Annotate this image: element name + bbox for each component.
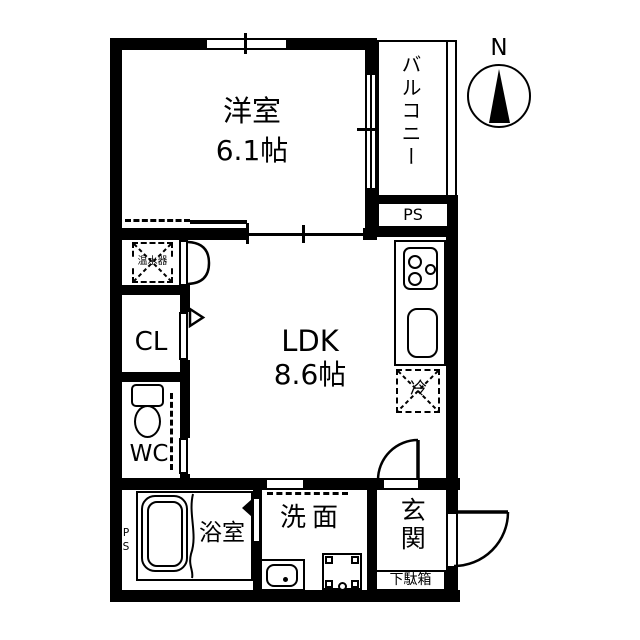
wall-left (110, 38, 122, 602)
window-balcony-tick (357, 128, 377, 131)
water-heater-door-leaf (179, 240, 188, 286)
heater-door-arc-top (188, 242, 209, 263)
closet-door-marker (190, 309, 203, 326)
western-room-size: 6.1帖 (185, 136, 319, 165)
sliding-door-track (247, 233, 363, 236)
room-boundary-dashed (125, 219, 190, 222)
pipe-space-bath-label: PS (120, 527, 131, 555)
wall-column-right-2 (180, 295, 190, 312)
shoe-cabinet-label: 下駄箱 (375, 573, 446, 588)
wall-closet-bottom (120, 372, 180, 382)
washer-tab-tr (351, 556, 359, 564)
stove-burner-3 (425, 264, 436, 275)
bath-door-leaf (252, 497, 261, 543)
wall-bottom (110, 590, 460, 602)
bathtub-inner (147, 501, 183, 567)
wall-bottomrow-3 (420, 478, 460, 490)
water-heater-label: 温水器 (130, 257, 175, 268)
balcony-label: バルコニー (399, 54, 420, 194)
ldk-size: 8.6帖 (243, 360, 377, 389)
sliding-door-tick-left (246, 223, 249, 244)
washroom-dashed-line (267, 492, 348, 495)
closet-door-leaf (179, 312, 188, 360)
washer-tab-bl (325, 580, 333, 588)
compass-north-label: N (484, 36, 514, 60)
balcony-rail-line (446, 42, 448, 195)
washroom-label: 洗面 (272, 505, 352, 532)
washroom-opening-sill (265, 478, 305, 490)
plan-linework (0, 0, 640, 640)
wall-bottomrow-1 (110, 478, 265, 490)
entrance-inner-door-arc (378, 440, 418, 480)
wall-right-lower (446, 568, 458, 602)
washer-tab-tl (325, 556, 333, 564)
wall-heater-top (120, 228, 182, 240)
toilet-tank (131, 384, 164, 407)
heater-door-arc-bottom (188, 263, 209, 284)
sliding-door-panel (190, 220, 247, 224)
wall-column-right-3 (180, 360, 190, 382)
sliding-door-tick-mid (302, 225, 305, 243)
stove-burner-1 (408, 255, 422, 269)
entrance-doorway-sill (382, 478, 420, 490)
closet-label: CL (122, 329, 180, 356)
wall-ldk-top-right (363, 228, 377, 240)
western-room-label: 洋室 (188, 96, 316, 126)
entrance-label: 玄関 (398, 497, 424, 569)
refrigerator-label: 冷 (408, 381, 429, 399)
stove-burner-2 (408, 272, 422, 286)
floor-plan: バルコニー PS 洋室 6.1帖 LDK 8.6帖 温水器 CL WC 冷 浴室… (0, 0, 640, 640)
wall-column-right-1 (180, 228, 190, 240)
front-door-arc (454, 512, 508, 566)
wall-heater-bottom (120, 285, 190, 295)
window-top-tick (244, 33, 247, 54)
wall-westernroom-right-top (365, 38, 377, 73)
kitchen-sink (407, 308, 438, 358)
toilet-label: WC (120, 442, 178, 466)
ldk-label: LDK (250, 326, 370, 356)
compass-circle (467, 64, 531, 128)
window-balcony-centerline (370, 75, 372, 188)
pipe-space-top-label: PS (379, 204, 447, 226)
front-door-opening (446, 512, 458, 568)
wall-column-right-4 (180, 382, 190, 438)
bathroom-label: 浴室 (193, 521, 251, 545)
toilet-bowl (134, 405, 161, 438)
wc-door-leaf (179, 438, 188, 474)
wall-ldk-top-left (182, 228, 247, 240)
vanity-drain (283, 577, 288, 582)
wall-right-upper (446, 237, 458, 513)
washer-tab-br (351, 580, 359, 588)
vanity-basin (266, 564, 298, 587)
washer-drain (338, 582, 347, 591)
